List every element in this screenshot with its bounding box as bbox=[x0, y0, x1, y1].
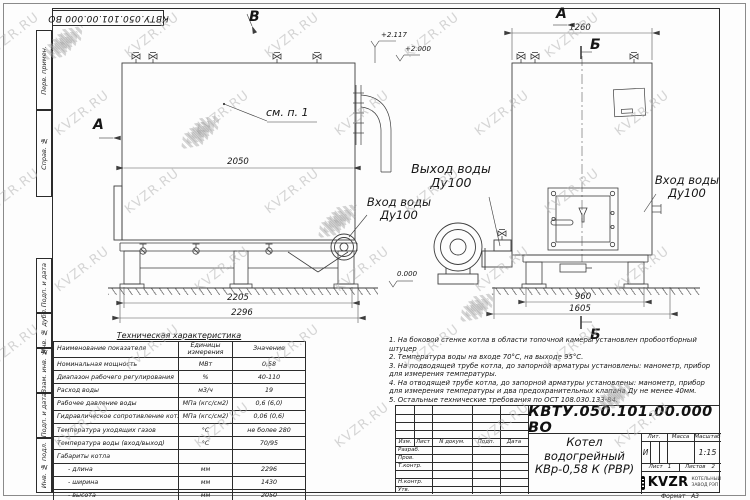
drawing-title: Котел водогрейный КВр-0,58 К (РВР) bbox=[528, 436, 641, 477]
param-value: 0,58 bbox=[233, 358, 306, 371]
param-name: Габариты котла bbox=[54, 450, 179, 463]
table-row: Габариты котла bbox=[54, 450, 306, 463]
tb-role-label: Разраб. bbox=[396, 446, 434, 454]
table-row: Температура воды (вход/выход)°С70/95 bbox=[54, 437, 306, 450]
side-view bbox=[108, 53, 391, 289]
param-value bbox=[233, 450, 306, 463]
coil-logo-icon bbox=[641, 476, 645, 490]
dim-1260: 1260 bbox=[569, 23, 591, 33]
valve-icon bbox=[531, 53, 539, 64]
param-name: Номинальная мощность bbox=[54, 358, 179, 371]
drawing-sheet: КВТУ.050.101.00.000 ВО Перв. примен.Спра… bbox=[0, 0, 750, 500]
fan-duct bbox=[482, 251, 512, 267]
elevation-mark-icon bbox=[389, 281, 397, 287]
param-units: МПа (кгс/см2) bbox=[179, 410, 233, 423]
sheet-cell: Лист 1 bbox=[641, 463, 679, 471]
drawing-title-line2: КВр-0,58 К (РВР) bbox=[528, 463, 641, 477]
param-name: Температура уходящих газов bbox=[54, 423, 179, 436]
base-frame-front bbox=[522, 255, 648, 288]
valve-icon bbox=[149, 53, 157, 64]
dim-1605: 1605 bbox=[569, 304, 591, 314]
param-units: % bbox=[179, 371, 233, 384]
tech-col-units: Единицы измерения bbox=[179, 342, 233, 358]
param-units: МПа (кгс/см2) bbox=[179, 397, 233, 410]
param-value: 0,06 (0,6) bbox=[233, 410, 306, 423]
side-panel bbox=[114, 186, 122, 240]
lit-value: И bbox=[641, 441, 650, 463]
leader-outlet bbox=[489, 197, 500, 246]
sheets-label: Листов bbox=[685, 464, 706, 470]
outlet-label-dn: Ду100 bbox=[411, 176, 491, 190]
dimensions bbox=[120, 28, 670, 323]
note-item: 4. На отводящей трубе котла, до запорной… bbox=[389, 379, 720, 396]
tb-header-cell: N докум. bbox=[432, 438, 472, 446]
table-row: Номинальная мощностьМВт0,58 bbox=[54, 358, 306, 371]
scale-label: Масштаб bbox=[694, 433, 721, 441]
param-units: МВт bbox=[179, 358, 233, 371]
table-row: Рабочее давление водыМПа (кгс/см2)0,6 (6… bbox=[54, 397, 306, 410]
dim-960: 960 bbox=[575, 292, 591, 302]
sheets-value: 2 bbox=[712, 464, 716, 470]
tb-header-cell: Подп. bbox=[472, 438, 500, 446]
param-value: 2050 bbox=[233, 489, 306, 500]
logo-sub-line2: ЗАВОД РЭП bbox=[691, 483, 721, 489]
dim-2205: 2205 bbox=[227, 293, 249, 303]
note-item: 2. Температура воды на входе 70°С, на вы… bbox=[389, 353, 720, 362]
format-word: Формат bbox=[661, 493, 685, 500]
inlet-label-dn: Ду100 bbox=[367, 209, 431, 222]
title-block: Изм.ЛистN докум.Подп.Дата Разраб.Пров.Т.… bbox=[395, 405, 720, 493]
inlet-flange bbox=[331, 234, 357, 260]
furnace-door bbox=[548, 188, 618, 250]
table-row: Гидравлическое сопротивление котлаМПа (к… bbox=[54, 410, 306, 423]
tech-col-value: Значение bbox=[233, 342, 306, 358]
drain-valve-icon bbox=[266, 244, 273, 254]
param-name: - ширина bbox=[54, 476, 179, 489]
param-value: не более 280 bbox=[233, 423, 306, 436]
valve-icon bbox=[517, 53, 525, 64]
dim-2050: 2050 bbox=[227, 157, 249, 167]
tech-col-name: Наименование показателя bbox=[54, 342, 179, 358]
param-name: - высота bbox=[54, 489, 179, 500]
tb-role-label: Пров. bbox=[396, 454, 434, 462]
door-latch bbox=[579, 208, 587, 222]
tb-header-cell: Изм. bbox=[396, 438, 414, 446]
note-item: 3. На подводящей трубе котла, до запорно… bbox=[389, 362, 720, 379]
param-units: мм bbox=[179, 463, 233, 476]
tb-header-cell: Дата bbox=[500, 438, 528, 446]
fan-blower bbox=[434, 223, 512, 284]
see-note-label: см. п. 1 bbox=[266, 106, 309, 119]
tb-header-cell: Лист bbox=[414, 438, 432, 446]
boiler-body-side bbox=[122, 63, 355, 240]
notes: 1. На боковой стенке котла в области топ… bbox=[389, 336, 720, 405]
valve-icon bbox=[498, 230, 506, 241]
view-marker-A-front: А bbox=[556, 6, 567, 22]
logo-subtitle: КОТЕЛЬНЫЙ ЗАВОД РЭП bbox=[691, 477, 721, 488]
param-value: 40-110 bbox=[233, 371, 306, 384]
param-units: °С bbox=[179, 423, 233, 436]
param-name: Температура воды (вход/выход) bbox=[54, 437, 179, 450]
table-row: Диапазон рабочего регулирования%40-110 bbox=[54, 371, 306, 384]
valve-icon bbox=[273, 53, 281, 64]
view-marker-B: В bbox=[249, 9, 260, 25]
param-name: Рабочее давление воды bbox=[54, 397, 179, 410]
param-name: - длина bbox=[54, 463, 179, 476]
valve-icon bbox=[132, 53, 140, 64]
param-name: Расход воды bbox=[54, 384, 179, 397]
elevation-mark-icon bbox=[371, 41, 379, 47]
tech-table-body: Номинальная мощностьМВт0,58Диапазон рабо… bbox=[54, 358, 306, 500]
view-marker-A-side: А bbox=[93, 117, 104, 133]
tb-role-label: Н.контр. bbox=[396, 478, 434, 486]
dim-2296: 2296 bbox=[231, 308, 253, 318]
param-value: 2296 bbox=[233, 463, 306, 476]
tech-characteristics: Техническая характеристика Наименование … bbox=[53, 331, 305, 500]
tb-role-label bbox=[396, 470, 434, 478]
elevation-value: +2.000 bbox=[405, 45, 431, 53]
param-units: мм bbox=[179, 476, 233, 489]
sheet-value: 1 bbox=[668, 464, 672, 470]
doc-number: КВТУ.050.101.00.000 ВО bbox=[528, 406, 721, 433]
format-value: А3 bbox=[691, 493, 699, 500]
param-units bbox=[179, 450, 233, 463]
drain-valve-icon bbox=[140, 244, 147, 254]
table-row: - длинамм2296 bbox=[54, 463, 306, 476]
tb-role-label: Т.контр. bbox=[396, 462, 434, 470]
param-units: мм bbox=[179, 489, 233, 500]
note-item: 1. На боковой стенке котла в области топ… bbox=[389, 336, 720, 353]
elevation-value: 0.000 bbox=[397, 270, 417, 278]
sheet-label: Лист bbox=[649, 464, 663, 470]
chimney-duct bbox=[353, 85, 391, 172]
drawing-title-line1: Котел водогрейный bbox=[528, 436, 641, 463]
tech-table: Наименование показателя Единицы измерени… bbox=[53, 341, 306, 500]
table-row: Температура уходящих газов°Сне более 280 bbox=[54, 423, 306, 436]
front-view bbox=[492, 53, 700, 289]
nameplate bbox=[613, 88, 645, 117]
duct-elbow bbox=[494, 240, 511, 251]
inlet-stub bbox=[652, 204, 661, 214]
param-units: °С bbox=[179, 437, 233, 450]
format-label: Формат А3 bbox=[640, 493, 720, 500]
param-name: Гидравлическое сопротивление котла bbox=[54, 410, 179, 423]
manufacturer-logo: KVZR КОТЕЛЬНЫЙ ЗАВОД РЭП bbox=[641, 471, 721, 494]
elevation-value: +2.117 bbox=[381, 31, 407, 39]
inlet-label-side: Вход воды Ду100 bbox=[367, 196, 431, 222]
valve-icon bbox=[630, 53, 638, 64]
param-value: 70/95 bbox=[233, 437, 306, 450]
elevation-mark-icon bbox=[396, 55, 404, 61]
param-name: Диапазон рабочего регулирования bbox=[54, 371, 179, 384]
table-row: - высотамм2050 bbox=[54, 489, 306, 500]
tb-role-label: Утв. bbox=[396, 486, 434, 494]
sheets-cell: Листов 2 bbox=[679, 463, 721, 471]
param-value: 19 bbox=[233, 384, 306, 397]
param-value: 1430 bbox=[233, 476, 306, 489]
leaders-and-marks bbox=[99, 14, 656, 329]
lit-label: Лит. bbox=[641, 433, 667, 441]
logo-text: KVZR bbox=[648, 475, 689, 490]
outlet-label-text: Выход воды bbox=[411, 162, 491, 176]
valve-icon bbox=[313, 53, 321, 64]
table-row: Расход водым3/ч19 bbox=[54, 384, 306, 397]
tech-table-title: Техническая характеристика bbox=[53, 331, 305, 340]
outlet-label: Выход воды Ду100 bbox=[411, 162, 491, 190]
drain-valve-icon bbox=[193, 244, 200, 254]
mass-label: Масса bbox=[667, 433, 694, 441]
param-value: 0,6 (6,0) bbox=[233, 397, 306, 410]
base-frame-side bbox=[120, 243, 358, 288]
param-units: м3/ч bbox=[179, 384, 233, 397]
inlet-label-front: Вход воды Ду100 bbox=[655, 174, 719, 200]
section-marker-B-top: Б bbox=[590, 37, 601, 53]
table-row: - ширинамм1430 bbox=[54, 476, 306, 489]
leader-inlet-side bbox=[349, 215, 367, 237]
scale-value: 1:15 bbox=[694, 441, 721, 463]
inlet-label-dn: Ду100 bbox=[655, 187, 719, 200]
